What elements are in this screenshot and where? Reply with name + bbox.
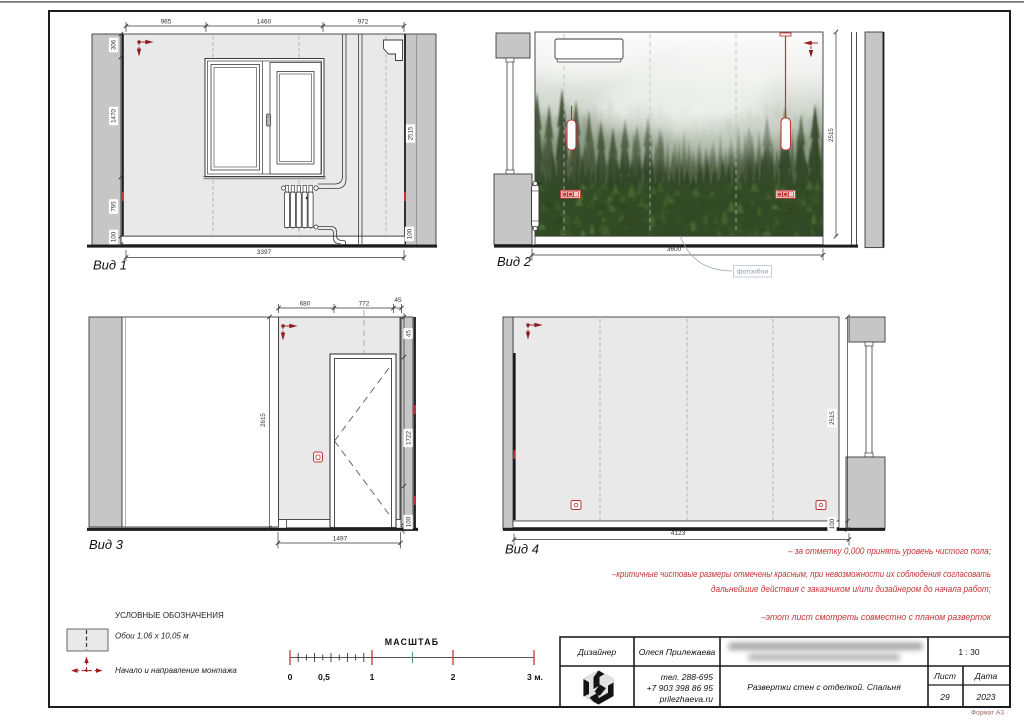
svg-text:972: 972	[358, 19, 369, 26]
svg-text:2023: 2023	[976, 692, 996, 702]
svg-text:Начало и направление монтажа: Начало и направление монтажа	[115, 666, 237, 675]
svg-text:+7 903 398 86 95: +7 903 398 86 95	[647, 683, 714, 693]
svg-text:45: 45	[405, 330, 412, 337]
svg-text:772: 772	[359, 301, 370, 308]
svg-text:0,5: 0,5	[318, 672, 330, 682]
svg-text:29: 29	[939, 692, 950, 702]
svg-text:УСЛОВНЫЕ ОБОЗНАЧЕНИЯ: УСЛОВНЫЕ ОБОЗНАЧЕНИЯ	[115, 611, 224, 620]
svg-text:680: 680	[300, 301, 311, 308]
svg-text:Дизайнер: Дизайнер	[577, 647, 616, 657]
svg-text:Вид 3: Вид 3	[89, 537, 124, 552]
svg-text:3 м.: 3 м.	[527, 672, 543, 682]
svg-text:306: 306	[111, 39, 118, 50]
svg-text:3397: 3397	[257, 249, 272, 256]
svg-text:1460: 1460	[257, 19, 272, 26]
svg-text:965: 965	[161, 19, 172, 26]
svg-text:Вид 1: Вид 1	[93, 258, 127, 273]
svg-text:фотообои: фотообои	[737, 268, 768, 276]
svg-text:0: 0	[288, 672, 293, 682]
svg-text:1: 1	[370, 672, 375, 682]
svg-text:prilezhaeva.ru: prilezhaeva.ru	[659, 694, 714, 704]
svg-text:Вид 4: Вид 4	[505, 542, 539, 557]
svg-text:100: 100	[111, 231, 118, 242]
svg-text:Формат А3: Формат А3	[971, 710, 1004, 717]
svg-text:Обои 1,06 х 10,05 м: Обои 1,06 х 10,05 м	[115, 632, 189, 641]
svg-text:2515: 2515	[828, 128, 835, 142]
svg-text:1 : 30: 1 : 30	[958, 647, 980, 657]
svg-text:1470: 1470	[111, 109, 118, 123]
svg-text:3600: 3600	[667, 246, 682, 253]
svg-text:1497: 1497	[333, 536, 348, 543]
svg-text:Дата: Дата	[974, 671, 998, 681]
svg-text:100: 100	[407, 228, 414, 239]
svg-text:2515: 2515	[408, 126, 415, 140]
svg-text:–критичные чистовые размеры от: –критичные чистовые размеры отмечены кра…	[611, 569, 991, 580]
svg-text:Вид 2: Вид 2	[497, 254, 532, 269]
svg-text:МАСШТАБ: МАСШТАБ	[385, 637, 440, 647]
svg-text:100: 100	[829, 518, 836, 529]
svg-text:Лист: Лист	[933, 671, 956, 681]
svg-text:дальнейшие действия с заказчик: дальнейшие действия с заказчиком и/или д…	[711, 584, 991, 595]
svg-text:1722: 1722	[405, 431, 412, 445]
svg-text:тел. 288-695: тел. 288-695	[661, 672, 714, 682]
svg-text:4123: 4123	[671, 530, 686, 537]
svg-text:2: 2	[451, 672, 456, 682]
svg-text:Развертки стен с отделкой. Спа: Развертки стен с отделкой. Спальня	[747, 682, 901, 692]
svg-text:795: 795	[111, 201, 118, 212]
svg-text:–этот лист смотреть совместно: –этот лист смотреть совместно с планом р…	[760, 612, 991, 623]
svg-text:100: 100	[405, 516, 412, 527]
svg-text:– за отметку 0,000 принять ур: – за отметку 0,000 принять уровень чисто…	[787, 546, 991, 557]
svg-text:Олеся Прилежаева: Олеся Прилежаева	[639, 647, 716, 657]
svg-text:2615: 2615	[260, 413, 267, 427]
svg-text:45: 45	[394, 297, 402, 304]
svg-text:2515: 2515	[829, 411, 836, 425]
